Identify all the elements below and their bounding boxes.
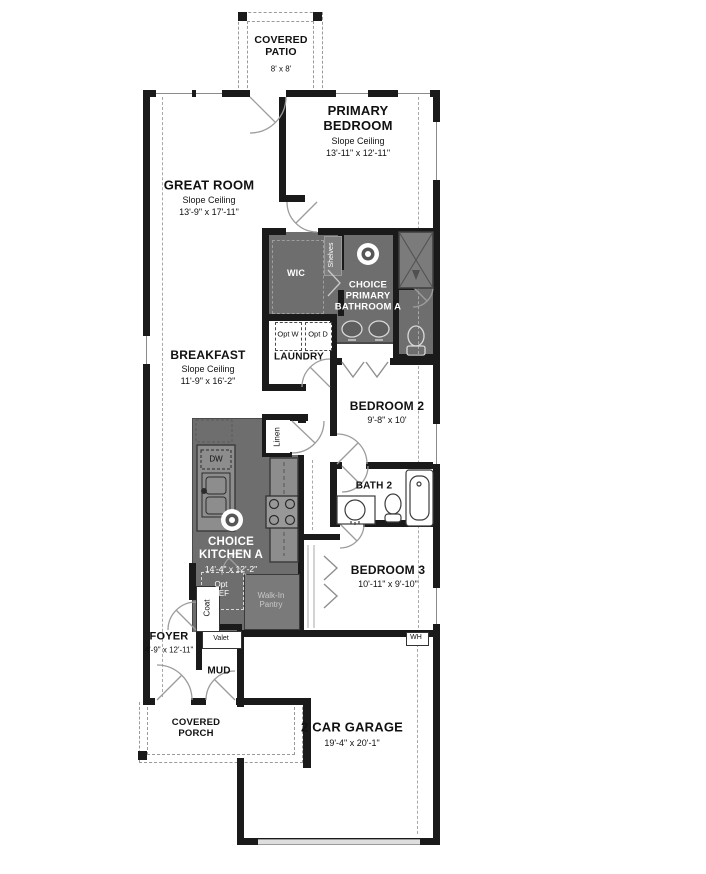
primary-toilet-icon (407, 326, 425, 355)
garage-label: 2 CAR GARAGE (301, 721, 403, 736)
wic-label: WIC (287, 268, 305, 278)
pantry-label: Walk-In Pantry (245, 591, 297, 609)
primary-bedroom-label: PRIMARY BEDROOM (293, 104, 423, 134)
vanity-sinks-icon (337, 321, 393, 343)
bath2-toilet-icon (385, 494, 401, 522)
bullseye-icon-bathroom (357, 243, 379, 265)
mud-label: MUD (207, 665, 230, 677)
laundry-door (302, 359, 330, 387)
bedroom2-dims: 9'-8" x 10' (367, 415, 406, 425)
bathtub-icon (406, 470, 433, 526)
great-room-label: GREAT ROOM (164, 179, 255, 194)
primary-bedroom-ceiling: Slope Ceiling (331, 136, 384, 146)
opt-washer-label: Opt W (277, 331, 299, 340)
bath2-label: BATH 2 (356, 480, 393, 492)
breakfast-ceiling: Slope Ceiling (181, 364, 234, 374)
breakfast-dims: 11'-9" x 16'-2" (181, 376, 236, 386)
valet-label: Valet (213, 635, 228, 643)
floor-plan: COVERED PATIO 8' x 8' GREAT ROOM Slope C… (0, 0, 706, 874)
bedroom3-door (340, 524, 364, 548)
coat-label: Coat (202, 600, 211, 617)
bedroom3-closet-bifold (308, 545, 337, 628)
linen-label: Linen (272, 427, 281, 447)
choice-kitchen-dims: 14'-4" x 12'-2" (205, 565, 257, 575)
bath2-sink-icon (337, 496, 375, 525)
patio-label: COVERED PATIO (246, 34, 316, 58)
patio-door (250, 97, 286, 133)
primary-bedroom-dims: 13'-11" x 12'-11" (326, 148, 390, 158)
shelves-label: Shelves (328, 243, 336, 268)
bedroom2-label: BEDROOM 2 (350, 400, 424, 414)
bullseye-icon-kitchen (221, 509, 243, 531)
garage-dims: 19'-4" x 20'-1" (324, 738, 379, 748)
patio-dims: 8' x 8' (271, 64, 291, 73)
dishwasher-label: DW (209, 454, 222, 463)
choice-kitchen-label: CHOICE KITCHEN A (186, 536, 276, 562)
toilet-room-door (413, 287, 433, 307)
bedroom3-dims: 10'-11" x 9'-10" (358, 579, 418, 589)
laundry-label: LAUNDRY (274, 351, 324, 363)
foyer-dims: 4'-9" x 12'-11" (145, 645, 194, 654)
foyer-entry-door (157, 665, 192, 700)
foyer-label: FOYER (150, 631, 189, 644)
great-room-ceiling: Slope Ceiling (182, 195, 235, 205)
opt-refrigerator-label: Opt REF (208, 580, 234, 598)
primary-bedroom-door (287, 202, 317, 232)
shower-icon (399, 232, 433, 288)
bedroom3-label: BEDROOM 3 (351, 564, 425, 578)
range-icon (266, 496, 298, 528)
linen-door (292, 421, 324, 453)
breakfast-label: BREAKFAST (170, 349, 245, 363)
choice-primary-bathroom-label: CHOICE PRIMARY BATHROOM A (328, 281, 408, 314)
coat-door (168, 602, 196, 630)
bedroom2-closet-bifold (342, 362, 388, 377)
great-room-dims: 13'-9" x 17'-11" (179, 207, 239, 217)
porch-label: COVERED PORCH (166, 718, 226, 740)
water-heater-label: WH (410, 634, 422, 642)
opt-dryer-label: Opt D (307, 331, 329, 340)
bedroom2-door (337, 434, 367, 464)
